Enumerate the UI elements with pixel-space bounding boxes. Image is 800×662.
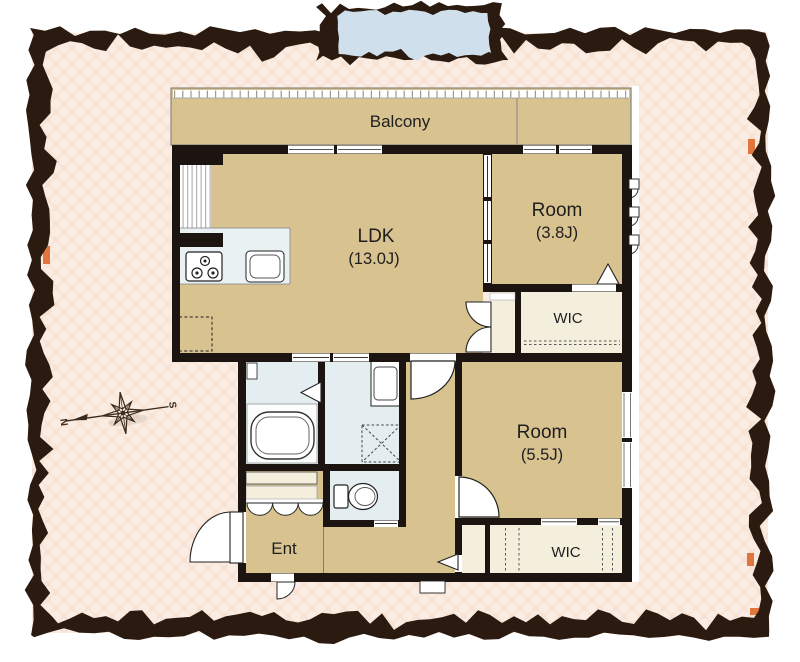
shoe-cabinet <box>246 486 317 500</box>
vanity-basin <box>371 361 400 406</box>
floorplan: Balcony LDK (13.0J) Room (3.8J) WIC Room… <box>171 86 639 599</box>
sliding-partition <box>484 155 491 283</box>
toilet-sliding-door <box>374 521 398 528</box>
south-step <box>420 581 445 593</box>
east-margin <box>632 86 639 582</box>
floorplan-page: Balcony LDK (13.0J) Room (3.8J) WIC Room… <box>0 0 800 662</box>
room-5-5-windows <box>622 392 632 488</box>
stove <box>186 252 222 281</box>
balcony-label: Balcony <box>370 112 431 131</box>
washi-tape <box>316 1 508 66</box>
ldk-size: (13.0J) <box>348 250 399 268</box>
ldk-name: LDK <box>358 226 395 247</box>
hall-strip-floor <box>323 527 406 573</box>
closet-lower-floor <box>462 525 485 573</box>
toilet <box>334 484 378 510</box>
room-3-8-size: (3.8J) <box>536 224 578 242</box>
hall-doorway <box>410 354 456 362</box>
room-5-5-name: Room <box>517 422 568 443</box>
room-3-8-name: Room <box>532 200 583 221</box>
closet-upper-track <box>490 293 515 300</box>
linen-cabinet <box>246 472 317 484</box>
kitchen-sink <box>246 251 284 282</box>
wic-upper-doorway <box>572 285 616 292</box>
bathtub <box>251 412 314 459</box>
floorplan-art: Balcony LDK (13.0J) Room (3.8J) WIC Room… <box>0 0 800 662</box>
bath-counter <box>247 363 257 379</box>
room-5-5-size: (5.5J) <box>521 446 563 464</box>
entrance-bottom-opening <box>271 574 294 582</box>
closet-upper-floor <box>490 292 515 353</box>
wic-upper-label: WIC <box>553 310 582 327</box>
entrance-label: Ent <box>271 539 297 558</box>
wic-lower-label: WIC <box>551 544 580 561</box>
shoe-cabinet-door-arcs <box>247 503 323 515</box>
compass-north-label: N <box>57 418 69 427</box>
